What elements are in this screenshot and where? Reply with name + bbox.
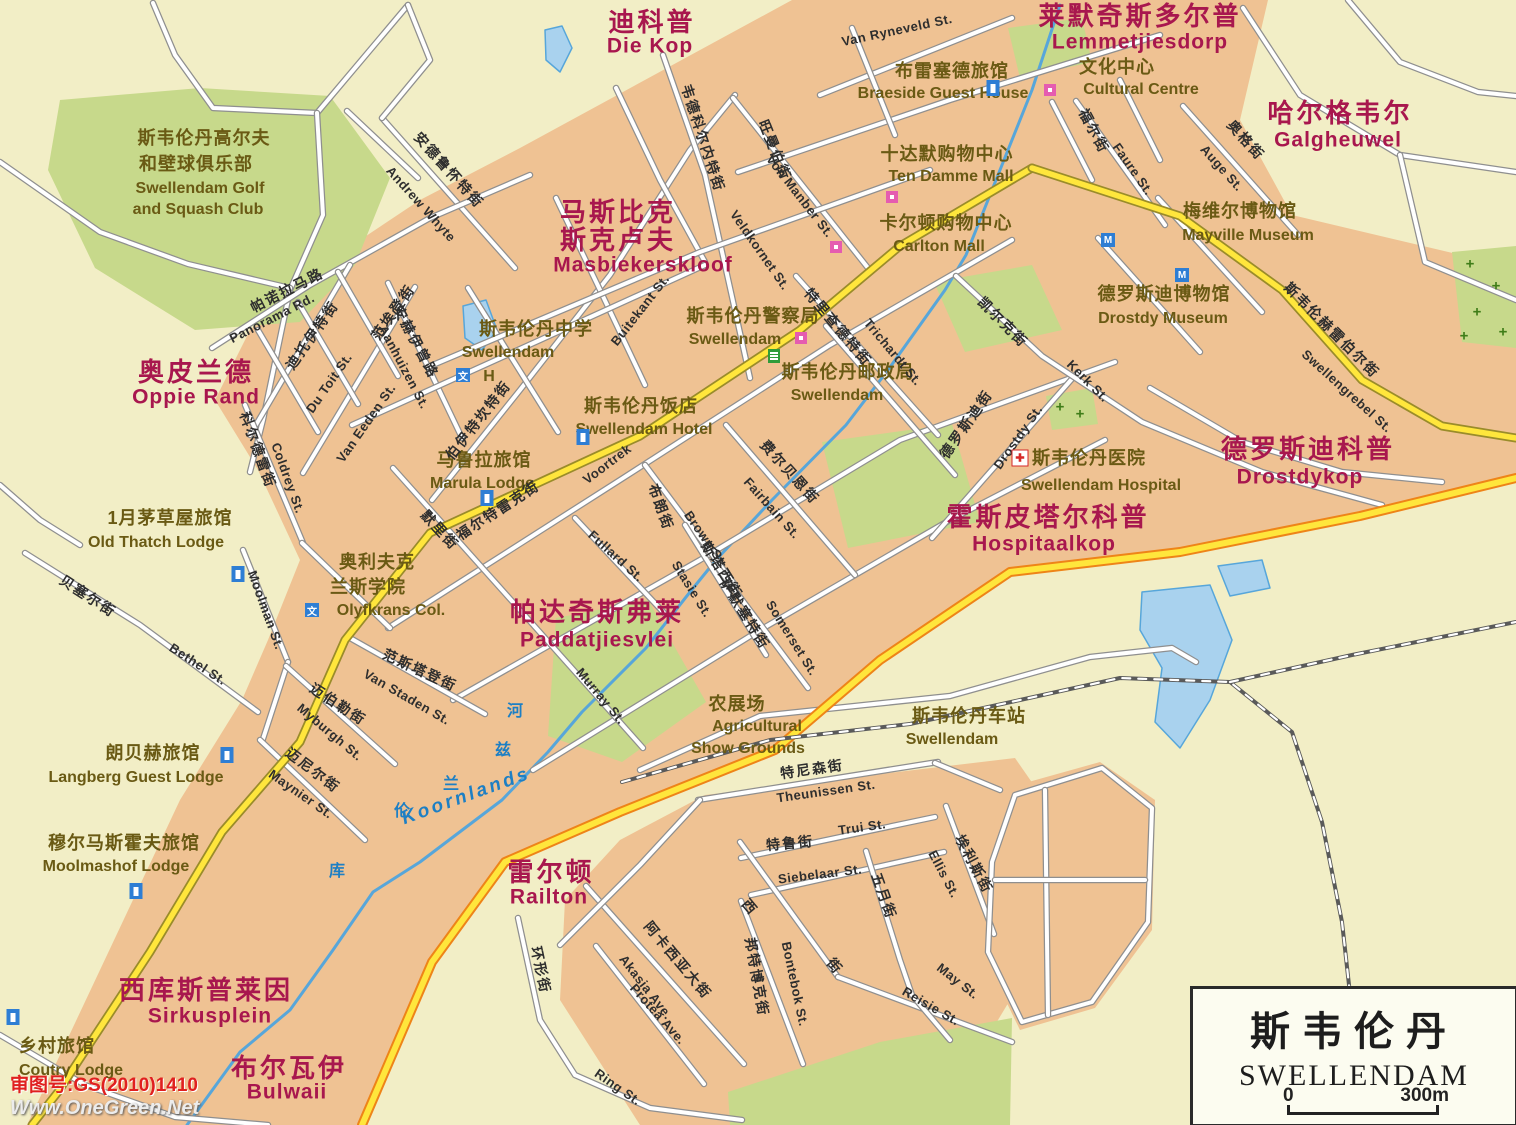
map-label: Olyfkrans Col. bbox=[337, 603, 445, 619]
map-label: 河 bbox=[507, 704, 523, 720]
map-label: 乡村旅馆 bbox=[19, 1037, 95, 1055]
map-label: 农展场 bbox=[709, 695, 766, 713]
map-label: 奥皮兰德 bbox=[138, 359, 254, 385]
hotel-icon bbox=[221, 747, 234, 763]
mall-icon bbox=[830, 241, 842, 253]
map-label: Sirkusplein bbox=[148, 1006, 272, 1027]
map-label: Die Kop bbox=[607, 36, 693, 57]
map-label: 文化中心 bbox=[1079, 58, 1155, 76]
map-label: Swellendam bbox=[462, 345, 554, 361]
post-icon bbox=[768, 349, 780, 363]
hotel-icon-glyph bbox=[581, 433, 586, 442]
map-label: + bbox=[1466, 257, 1475, 272]
map-label: 布雷塞德旅馆 bbox=[895, 62, 1009, 80]
map-label: Ten Damme Mall bbox=[888, 169, 1013, 185]
map-label: Old Thatch Lodge bbox=[88, 535, 224, 551]
map-label: and Squash Club bbox=[133, 202, 264, 218]
map-label: 斯克卢夫 bbox=[560, 227, 676, 253]
map-label: Drostdykop bbox=[1237, 467, 1364, 488]
map-label: Hospitaalkop bbox=[972, 534, 1116, 555]
mall-icon-glyph bbox=[890, 195, 894, 199]
py-water bbox=[545, 26, 572, 72]
road-c bbox=[382, 5, 430, 118]
map-label: Swellendam Golf bbox=[136, 181, 265, 197]
map-label: 霍斯皮塔尔科普 bbox=[946, 504, 1149, 530]
police-icon bbox=[795, 332, 807, 344]
post-icon-glyph bbox=[770, 355, 778, 357]
mall-icon-glyph bbox=[1048, 88, 1052, 92]
map-label: 斯韦伦丹饭店 bbox=[584, 397, 698, 415]
scale-end-label: 300m bbox=[1400, 1085, 1449, 1107]
hotel-icon-glyph bbox=[236, 570, 241, 579]
museum-icon: M bbox=[1175, 268, 1189, 282]
road-f bbox=[25, 553, 258, 712]
map-label: 德罗斯迪博物馆 bbox=[1098, 285, 1231, 303]
map-label: 1月茅草屋旅馆 bbox=[107, 509, 232, 527]
map-label: + bbox=[1473, 305, 1482, 320]
map-label: 十达默购物中心 bbox=[881, 145, 1014, 163]
map-label: Drostdy Museum bbox=[1098, 311, 1228, 327]
map-label: Moolmashof Lodge bbox=[43, 859, 190, 875]
map-label: 特鲁街 bbox=[765, 834, 814, 852]
map-label: Agricultural bbox=[712, 719, 802, 735]
map-label: + bbox=[1499, 325, 1508, 340]
map-label: 西库斯普莱因 bbox=[119, 977, 293, 1003]
map-label: 斯韦伦丹高尔夫 bbox=[138, 129, 271, 147]
map-label: 库 bbox=[329, 864, 345, 880]
school-icon: 文 bbox=[456, 368, 470, 382]
map-label: Paddatjiesvlei bbox=[520, 630, 674, 651]
map-label: Swellendam bbox=[791, 388, 883, 404]
map-title-zh: 斯韦伦丹 bbox=[1193, 999, 1515, 1057]
map-label: + bbox=[1460, 329, 1469, 344]
road-c bbox=[1348, 0, 1516, 96]
map-label: Bulwaii bbox=[247, 1082, 328, 1103]
hotel-icon bbox=[481, 490, 494, 506]
hotel-icon-glyph bbox=[134, 887, 139, 896]
map-label: 斯韦伦丹中学 bbox=[479, 320, 593, 338]
py-water bbox=[1140, 585, 1232, 748]
py-water bbox=[1218, 560, 1270, 596]
map-label: 奥利夫克 bbox=[339, 553, 415, 571]
map-label: Masbiekerskloof bbox=[553, 255, 733, 276]
map-label: Mayville Museum bbox=[1182, 228, 1314, 244]
hotel-icon-glyph bbox=[485, 494, 490, 503]
map-label: 帕达奇斯弗莱 bbox=[510, 599, 684, 625]
scale-line bbox=[1287, 1105, 1439, 1115]
map-label: Railton bbox=[510, 887, 588, 908]
hotel-icon bbox=[130, 883, 143, 899]
map-label: Oppie Rand bbox=[132, 387, 260, 408]
map-label: Show Grounds bbox=[691, 741, 805, 757]
map-label: + bbox=[1492, 279, 1501, 294]
map-canvas: 迪科普Die Kop莱默奇斯多尔普Lemmetjiesdorp哈尔格韦尔Galg… bbox=[0, 0, 1516, 1125]
map-label: Swellendam Hospital bbox=[1021, 478, 1181, 494]
map-label: H bbox=[483, 369, 495, 385]
map-label: Cultural Centre bbox=[1083, 82, 1199, 98]
map-label: Swellendam Hotel bbox=[576, 422, 713, 438]
mall-icon bbox=[886, 191, 898, 203]
map-label: 朗贝赫旅馆 bbox=[106, 744, 201, 762]
map-label: 马斯比克 bbox=[560, 199, 676, 225]
map-label: 和壁球俱乐部 bbox=[139, 155, 253, 173]
map-label: Lemmetjiesdorp bbox=[1052, 32, 1228, 53]
road-f bbox=[1348, 0, 1516, 96]
map-approval-number: 审图号:GS(2010)1410 bbox=[10, 1076, 198, 1095]
hospital-icon: ✚ bbox=[1012, 450, 1029, 467]
map-label: 哈尔格韦尔 bbox=[1267, 100, 1412, 126]
map-label: 迪科普 bbox=[608, 9, 695, 35]
map-title-box: 斯韦伦丹 SWELLENDAM 0 300m bbox=[1190, 986, 1516, 1125]
watermark: Www.OneGreen.Net bbox=[10, 1098, 199, 1118]
map-label: Swellendam bbox=[906, 732, 998, 748]
map-label: Swellendam bbox=[689, 332, 781, 348]
map-label: 雷尔顿 bbox=[507, 859, 594, 885]
map-label: 卡尔顿购物中心 bbox=[880, 214, 1013, 232]
hotel-icon bbox=[232, 566, 245, 582]
hotel-icon-glyph bbox=[225, 751, 230, 760]
police-icon-glyph bbox=[799, 336, 803, 340]
hotel-icon-glyph bbox=[11, 1013, 16, 1022]
map-label: Langberg Guest Lodge bbox=[48, 770, 223, 786]
museum-icon: M bbox=[1101, 233, 1115, 247]
road-f bbox=[382, 5, 430, 118]
mall-icon-glyph bbox=[834, 245, 838, 249]
hotel-icon bbox=[987, 80, 1000, 96]
map-label: 莱默奇斯多尔普 bbox=[1038, 3, 1241, 29]
map-label: + bbox=[1076, 407, 1085, 422]
map-label: 斯韦伦丹警察局 bbox=[687, 307, 820, 325]
scale-bar: 0 300m bbox=[1279, 1085, 1449, 1115]
scale-start-label: 0 bbox=[1283, 1085, 1294, 1107]
map-label: 梅维尔博物馆 bbox=[1183, 202, 1297, 220]
map-label: 斯韦伦丹医院 bbox=[1032, 449, 1146, 467]
map-label: Carlton Mall bbox=[893, 239, 985, 255]
map-label: Galgheuwel bbox=[1274, 130, 1402, 151]
map-label: + bbox=[1056, 400, 1065, 415]
road-f bbox=[0, 485, 80, 545]
hotel-icon bbox=[577, 429, 590, 445]
map-label: 穆尔马斯霍夫旅馆 bbox=[48, 834, 200, 852]
map-label: 兹 bbox=[495, 743, 511, 759]
school-icon: 文 bbox=[305, 603, 319, 617]
mall-icon bbox=[1044, 84, 1056, 96]
map-label: 兰斯学院 bbox=[330, 578, 406, 596]
map-label: 斯韦伦丹车站 bbox=[912, 707, 1026, 725]
map-label: Braeside Guest House bbox=[858, 86, 1029, 102]
hotel-icon-glyph bbox=[991, 84, 996, 93]
map-label: 布尔瓦伊 bbox=[231, 1055, 347, 1081]
hotel-icon bbox=[7, 1009, 20, 1025]
map-label: 德罗斯迪科普 bbox=[1221, 436, 1395, 462]
